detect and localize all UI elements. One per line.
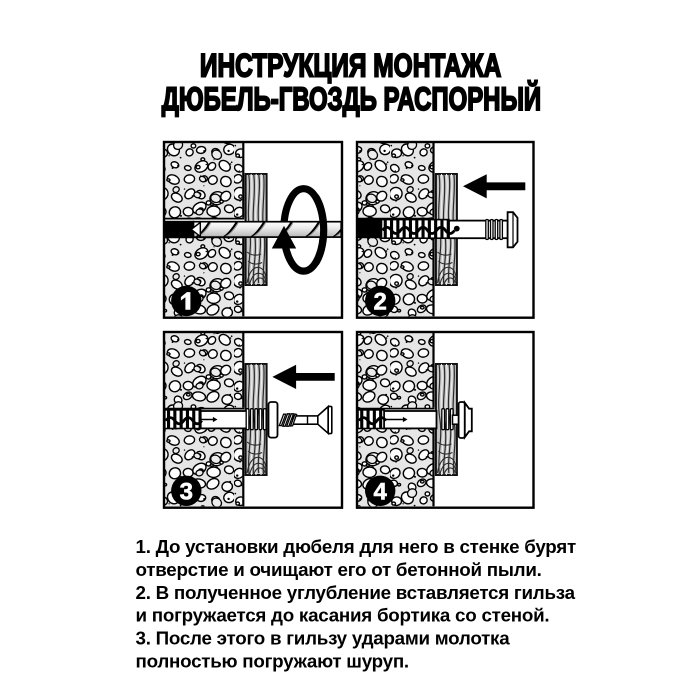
svg-text:и погружается до касания борти: и погружается до касания бортика со стен… [136,605,550,626]
svg-text:3. После этого в гильзу ударам: 3. После этого в гильзу ударами молотка [136,628,511,649]
svg-text:3: 3 [180,479,193,506]
svg-text:2. В полученное углубление вст: 2. В полученное углубление вставляется г… [136,582,576,603]
svg-text:1. До установки дюбеля для нег: 1. До установки дюбеля для него в стенке… [136,536,576,557]
svg-text:4: 4 [374,479,388,506]
svg-text:полностью погружают шуруп.: полностью погружают шуруп. [136,650,409,671]
svg-text:ДЮБЕЛЬ-ГВОЗДЬ РАСПОРНЫЙ: ДЮБЕЛЬ-ГВОЗДЬ РАСПОРНЫЙ [162,82,541,118]
svg-text:ИНСТРУКЦИЯ МОНТАЖА: ИНСТРУКЦИЯ МОНТАЖА [200,48,502,84]
svg-text:отверстие и очищают его от бет: отверстие и очищают его от бетонной пыли… [136,559,542,580]
svg-text:2: 2 [374,289,387,316]
